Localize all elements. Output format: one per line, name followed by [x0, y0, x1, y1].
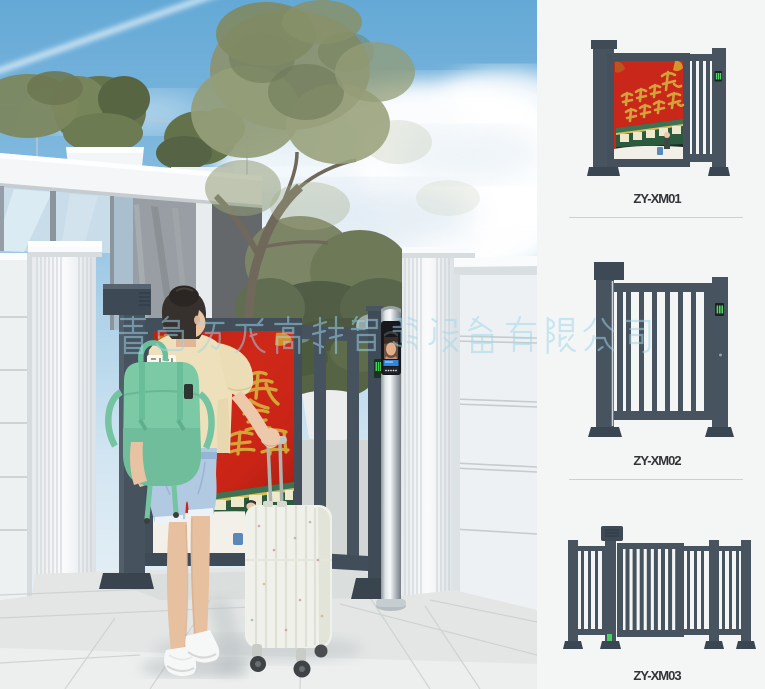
svg-text:ZY-XM03: ZY-XM03: [633, 668, 681, 683]
svg-text:ZY-XM02: ZY-XM02: [633, 453, 681, 468]
svg-text:ZY-XM01: ZY-XM01: [633, 191, 681, 206]
